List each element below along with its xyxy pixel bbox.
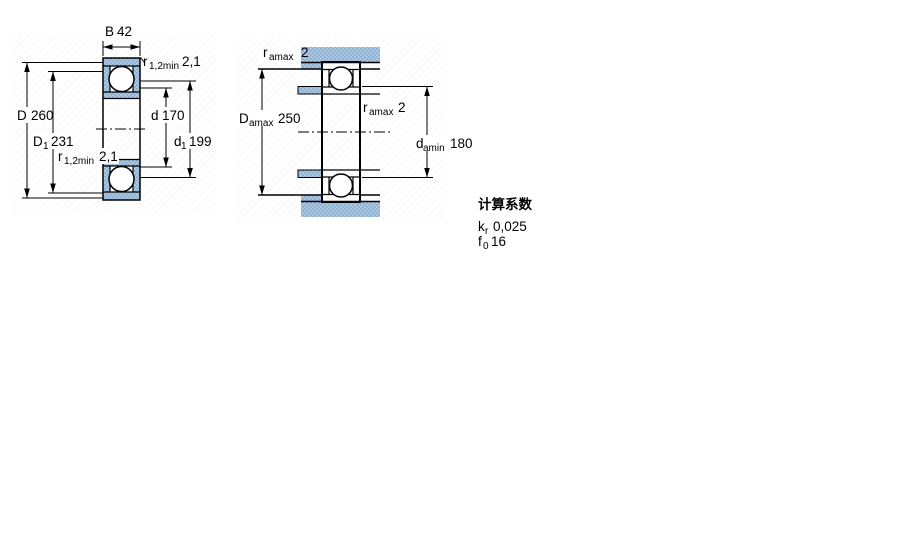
dim-label-D: D 260 <box>17 108 54 123</box>
ball-bottom <box>109 167 134 192</box>
calc-f0: f 0 16 <box>478 234 506 252</box>
dim-label-B: B 42 <box>105 24 132 39</box>
bearing-datasheet-page: B 42 r 1,2min 2,1 D 260 d 170 D 1 231 d … <box>0 0 900 560</box>
bearing-dimension-diagram: B 42 r 1,2min 2,1 D 260 d 170 D 1 231 d … <box>0 0 900 560</box>
calc-title: 计算系数 <box>478 196 532 212</box>
ball-top <box>330 67 353 90</box>
dim-label-damin: d amin 180 <box>416 136 473 154</box>
dim-label-d: d 170 <box>151 108 185 123</box>
calculation-factors: 计算系数 k r 0,025 f 0 16 <box>478 196 532 252</box>
ball-bottom <box>330 174 353 197</box>
ball-top <box>109 67 134 92</box>
